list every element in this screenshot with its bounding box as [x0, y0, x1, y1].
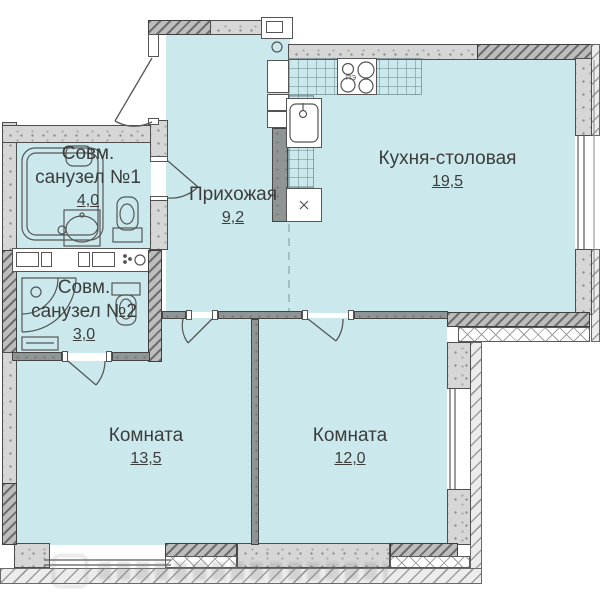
duct-box — [92, 252, 115, 267]
wall-segment — [470, 342, 482, 572]
kitchen-sink-icon — [286, 98, 322, 148]
wall-segment — [390, 543, 458, 557]
hallway-name: Прихожая — [168, 183, 298, 207]
wall-segment — [210, 20, 266, 35]
door-jamb — [62, 351, 68, 362]
room-left-area: 13,5 — [66, 448, 226, 470]
bathroom2-area: 3,0 — [6, 324, 162, 346]
wall-segment — [162, 311, 186, 319]
wall-segment — [12, 352, 62, 361]
stove-icon — [337, 58, 377, 95]
bathroom2-name-line1: Совм. — [6, 276, 162, 300]
door-jamb — [302, 310, 308, 320]
wall-pier — [575, 249, 592, 315]
wall-segment — [2, 125, 168, 143]
wall-segment — [218, 311, 302, 319]
wall-segment — [458, 327, 590, 342]
wall-segment — [591, 249, 600, 342]
wall-segment — [2, 352, 17, 484]
entry-door — [115, 58, 152, 126]
bathroom2-name-line2: санузел №2 — [6, 300, 162, 324]
duct-box — [16, 252, 39, 267]
bathroom1-name-line1: Совм. — [10, 142, 166, 166]
wall-pier — [14, 543, 50, 568]
floor-plan: ПЭ Совм. санузел №1 4,0 Прихожая 9,2 Кух… — [0, 0, 600, 600]
kitchen-area: 19,5 — [340, 171, 555, 193]
wall-segment — [591, 44, 600, 136]
label-bathroom1: Совм. санузел №1 4,0 — [10, 142, 166, 212]
door-jamb — [148, 34, 159, 57]
watermark — [52, 554, 388, 588]
kitchen-name: Кухня-столовая — [340, 147, 555, 171]
vent-shaft-inner — [266, 21, 283, 33]
fridge-icon — [267, 60, 289, 93]
wall-segment — [354, 311, 448, 319]
label-bathroom2: Совм. санузел №2 3,0 — [6, 276, 162, 346]
duct-box — [41, 252, 52, 267]
wall-pier — [447, 489, 471, 545]
wall-segment — [2, 483, 17, 545]
wall-segment — [148, 20, 212, 35]
watermark-logo — [52, 554, 88, 588]
label-hallway: Прихожая 9,2 — [168, 183, 298, 229]
bathroom1-area: 4,0 — [10, 190, 166, 212]
room-right-area: 12,0 — [270, 448, 430, 470]
wall-segment — [447, 312, 590, 327]
label-kitchen: Кухня-столовая 19,5 — [340, 147, 555, 193]
wall-pier — [447, 342, 471, 389]
room-left-name: Комната — [66, 424, 226, 448]
hallway-area: 9,2 — [168, 207, 298, 229]
room-right-name: Комната — [270, 424, 430, 448]
wall-segment — [251, 319, 259, 545]
wall-segment — [390, 556, 470, 568]
bathroom1-name-line2: санузел №1 — [10, 166, 166, 190]
wall-pier — [575, 58, 592, 136]
door-jamb — [186, 310, 192, 320]
door-jamb — [148, 118, 159, 125]
watermark-text-blur — [98, 562, 388, 580]
label-room-left: Комната 13,5 — [66, 424, 226, 470]
label-room-right: Комната 12,0 — [270, 424, 430, 470]
right-room-window — [450, 389, 455, 489]
wall-segment — [112, 352, 150, 361]
duct-box — [78, 252, 90, 267]
